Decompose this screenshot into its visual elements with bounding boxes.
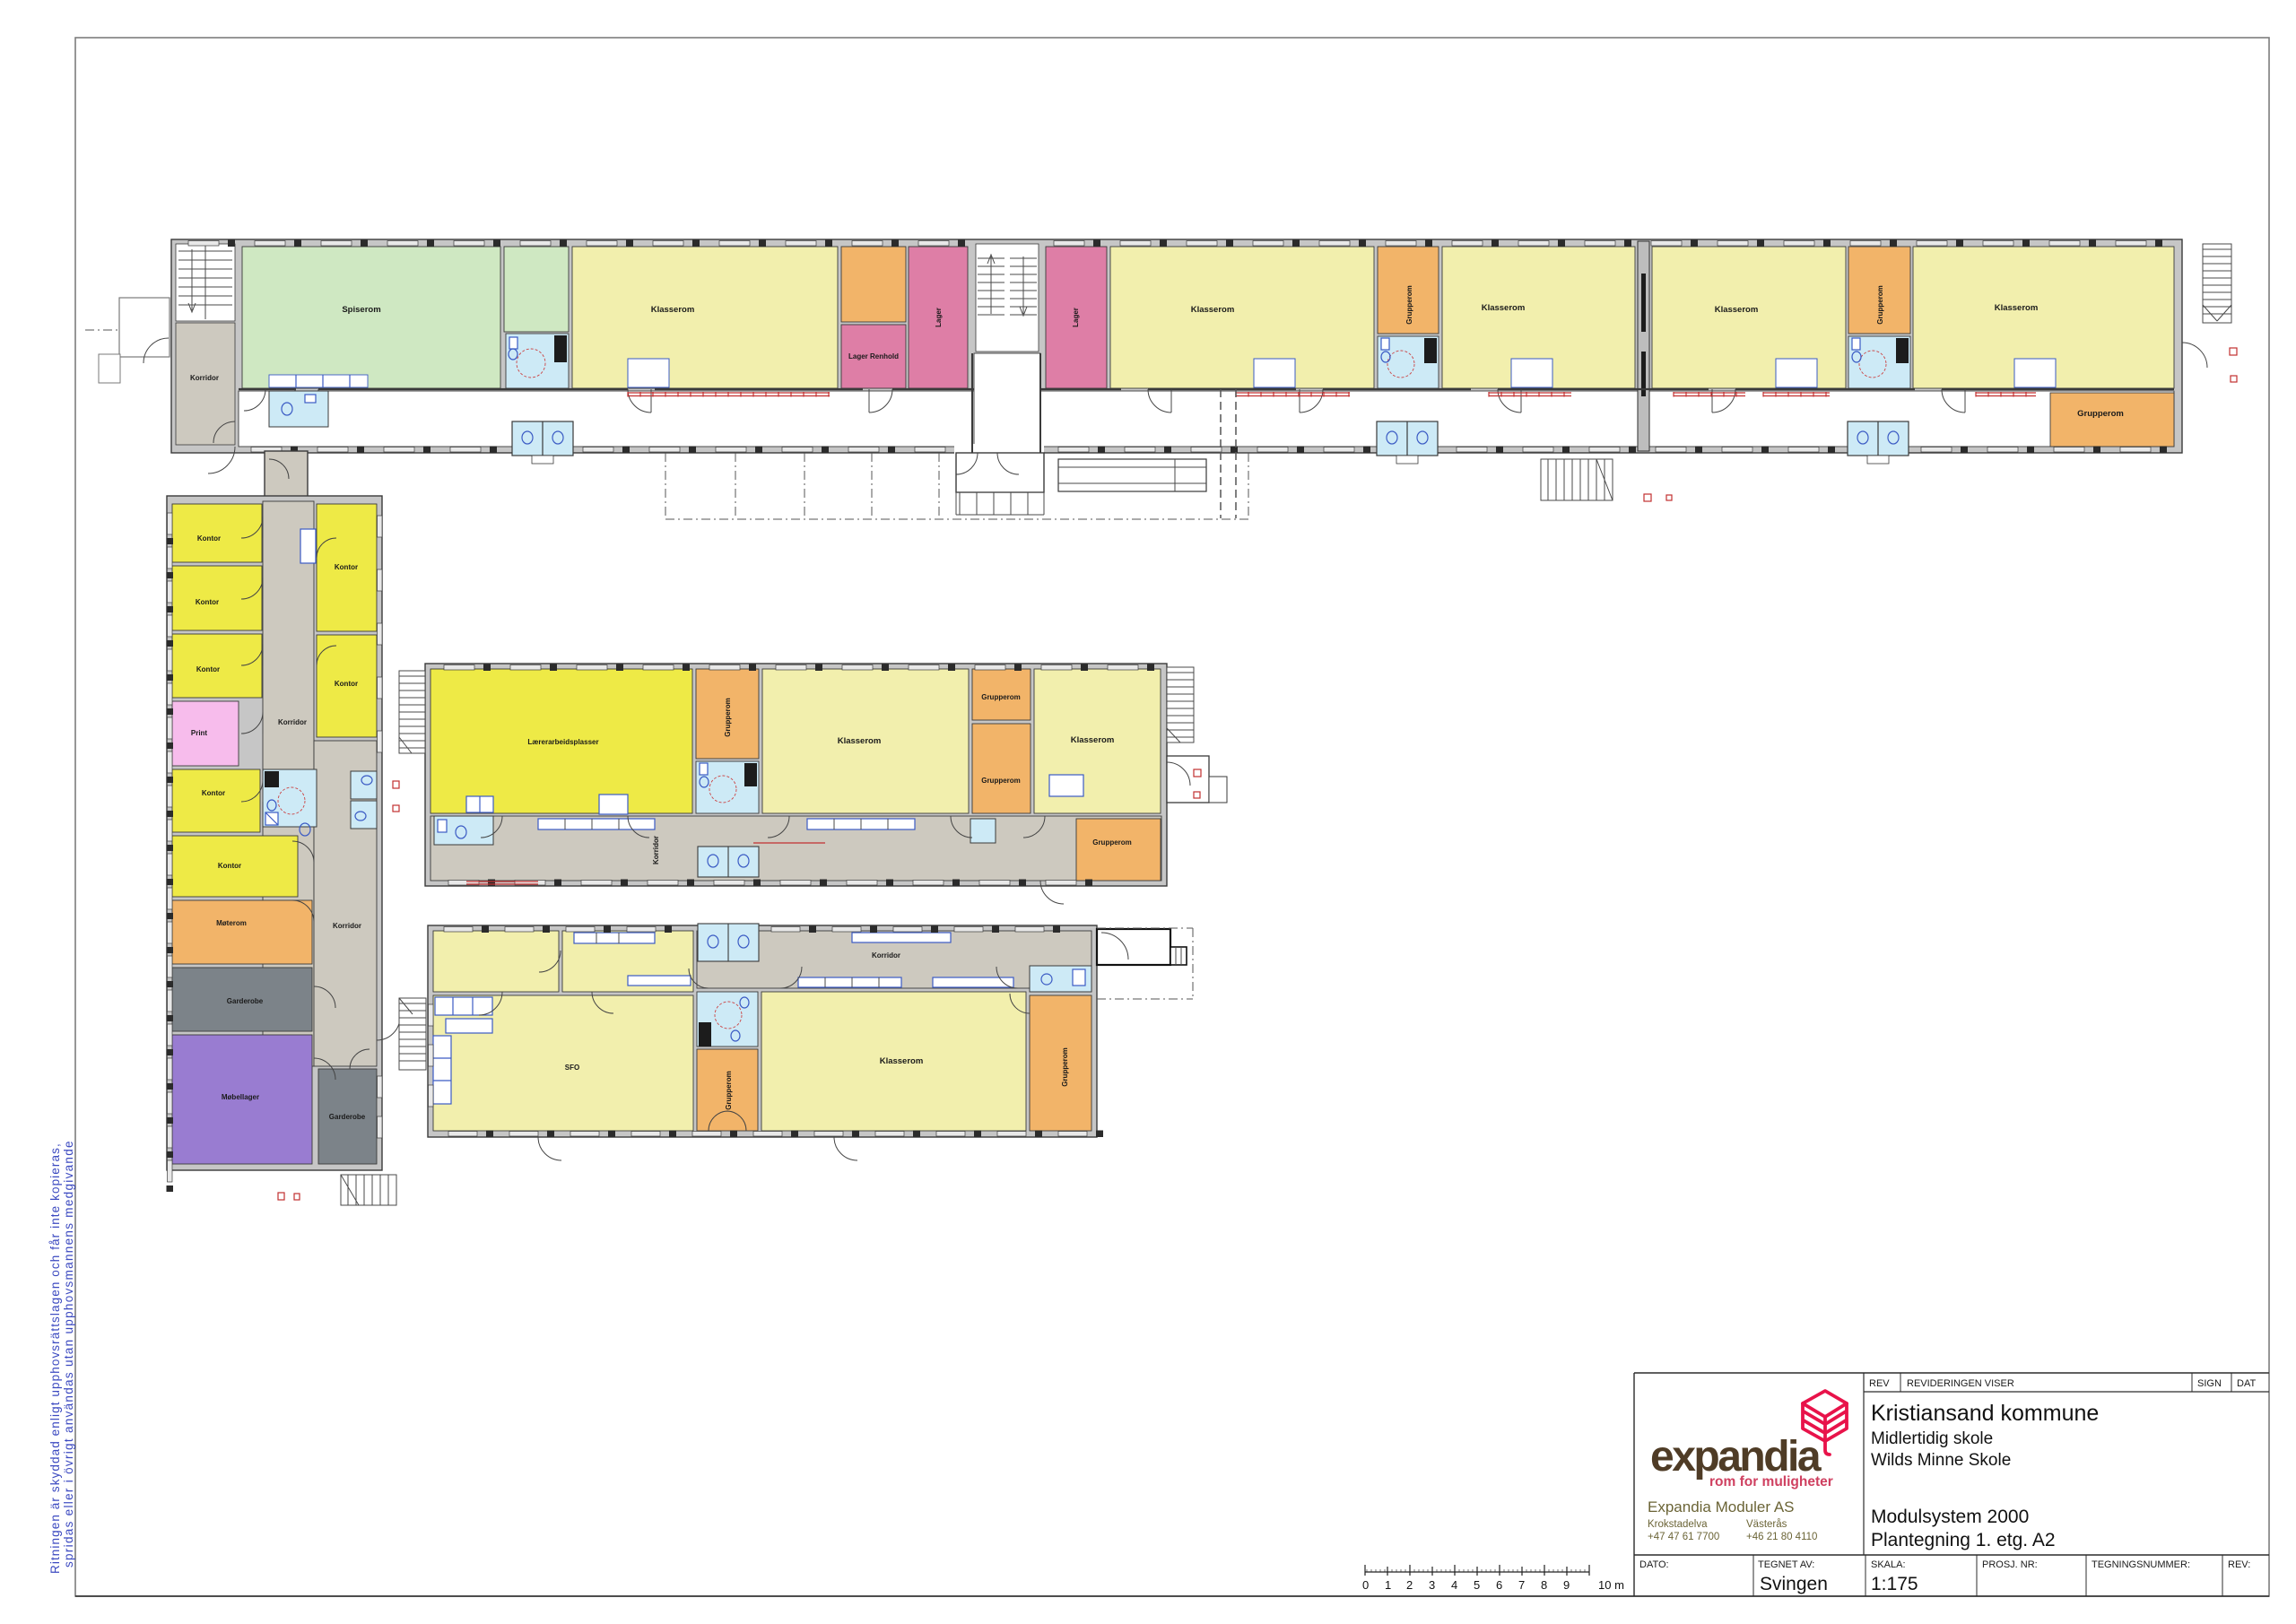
svg-text:DATO:: DATO: [1639, 1559, 1669, 1570]
svg-text:Grupperom: Grupperom [724, 698, 732, 737]
svg-text:8: 8 [1541, 1578, 1547, 1592]
svg-text:Grupperom: Grupperom [981, 777, 1021, 785]
svg-text:Midlertidig skole: Midlertidig skole [1871, 1429, 1993, 1448]
svg-text:+47 47 61 7700: +47 47 61 7700 [1648, 1532, 1719, 1542]
svg-text:DAT: DAT [2237, 1378, 2256, 1389]
svg-text:Møterom: Møterom [216, 919, 247, 927]
svg-text:REV: REV [1869, 1378, 1890, 1389]
svg-text:Klasserom: Klasserom [1995, 303, 2039, 313]
svg-text:Krokstadelva: Krokstadelva [1648, 1519, 1708, 1530]
svg-text:Grupperom: Grupperom [981, 693, 1021, 701]
svg-text:Grupperom: Grupperom [725, 1071, 733, 1110]
svg-text:REV:: REV: [2228, 1559, 2250, 1570]
svg-text:Kontor: Kontor [196, 598, 219, 606]
svg-text:5: 5 [1474, 1578, 1480, 1592]
svg-text:3: 3 [1429, 1578, 1435, 1592]
svg-text:Klasserom: Klasserom [1715, 305, 1759, 315]
svg-text:7: 7 [1518, 1578, 1525, 1592]
svg-text:Print: Print [191, 729, 208, 737]
svg-text:Modulsystem 2000: Modulsystem 2000 [1871, 1507, 2029, 1527]
svg-text:Garderobe: Garderobe [227, 997, 264, 1005]
svg-text:Lager: Lager [935, 308, 943, 327]
svg-text:Grupperom: Grupperom [2077, 409, 2124, 419]
svg-text:Garderobe: Garderobe [329, 1113, 366, 1121]
svg-text:Lager: Lager [1072, 308, 1080, 327]
svg-text:Expandia Moduler AS: Expandia Moduler AS [1648, 1498, 1795, 1515]
svg-text:Kontor: Kontor [335, 563, 358, 571]
svg-text:Grupperom: Grupperom [1061, 1047, 1069, 1087]
svg-text:Klasserom: Klasserom [838, 736, 882, 746]
svg-text:0: 0 [1362, 1578, 1369, 1592]
svg-text:PROSJ. NR:: PROSJ. NR: [1982, 1559, 2038, 1570]
svg-text:spridas eller i övrigt använda: spridas eller i övrigt användas utan upp… [62, 1140, 75, 1568]
svg-text:Møbellager: Møbellager [222, 1093, 259, 1101]
svg-text:Lager Renhold: Lager Renhold [848, 352, 899, 360]
svg-text:Korridor: Korridor [278, 718, 307, 726]
svg-text:Kontor: Kontor [335, 680, 358, 688]
svg-text:2: 2 [1406, 1578, 1413, 1592]
svg-text:Korridor: Korridor [652, 836, 660, 864]
svg-text:Klasserom: Klasserom [651, 305, 695, 315]
svg-text:TEGNET AV:: TEGNET AV: [1758, 1559, 1814, 1570]
svg-text:Spiserom: Spiserom [342, 305, 380, 315]
svg-text:rom for muligheter: rom for muligheter [1709, 1474, 1833, 1489]
svg-text:6: 6 [1496, 1578, 1502, 1592]
svg-text:SFO: SFO [565, 1064, 579, 1072]
svg-text:Korridor: Korridor [333, 922, 361, 930]
svg-text:Wilds Minne Skole: Wilds Minne Skole [1871, 1451, 2011, 1470]
svg-text:Kontor: Kontor [202, 789, 225, 797]
svg-text:Grupperom: Grupperom [1405, 285, 1413, 325]
svg-text:Ritningen är skyddad enligt up: Ritningen är skyddad enligt upphovsrätts… [48, 1142, 62, 1574]
svg-text:10 m: 10 m [1598, 1578, 1624, 1592]
svg-text:Lærerarbeidsplasser: Lærerarbeidsplasser [527, 738, 598, 746]
svg-text:Korridor: Korridor [872, 951, 900, 960]
svg-text:Klasserom: Klasserom [1191, 305, 1235, 315]
svg-text:1: 1 [1385, 1578, 1391, 1592]
svg-text:SIGN: SIGN [2197, 1378, 2222, 1389]
svg-text:Kontor: Kontor [218, 862, 241, 870]
svg-text:Västerås: Västerås [1746, 1519, 1787, 1530]
svg-text:REVIDERINGEN VISER: REVIDERINGEN VISER [1907, 1378, 2014, 1389]
svg-text:Kontor: Kontor [196, 665, 220, 673]
svg-text:9: 9 [1563, 1578, 1570, 1592]
svg-text:Klasserom: Klasserom [1071, 735, 1115, 745]
svg-text:Klasserom: Klasserom [880, 1056, 924, 1066]
svg-text:TEGNINGSNUMMER:: TEGNINGSNUMMER: [2092, 1559, 2190, 1570]
svg-text:Korridor: Korridor [190, 374, 219, 382]
svg-text:Klasserom: Klasserom [1482, 303, 1526, 313]
svg-text:SKALA:: SKALA: [1871, 1559, 1906, 1570]
svg-text:Svingen: Svingen [1760, 1574, 1828, 1594]
svg-text:Kristiansand kommune: Kristiansand kommune [1871, 1401, 2099, 1426]
svg-text:Grupperom: Grupperom [1092, 838, 1132, 847]
svg-text:+46 21 80 4110: +46 21 80 4110 [1746, 1532, 1817, 1542]
svg-text:Kontor: Kontor [197, 534, 221, 543]
svg-text:4: 4 [1451, 1578, 1457, 1592]
svg-text:Grupperom: Grupperom [1876, 285, 1884, 325]
svg-text:1:175: 1:175 [1871, 1574, 1918, 1594]
svg-text:Plantegning 1. etg. A2: Plantegning 1. etg. A2 [1871, 1530, 2056, 1550]
